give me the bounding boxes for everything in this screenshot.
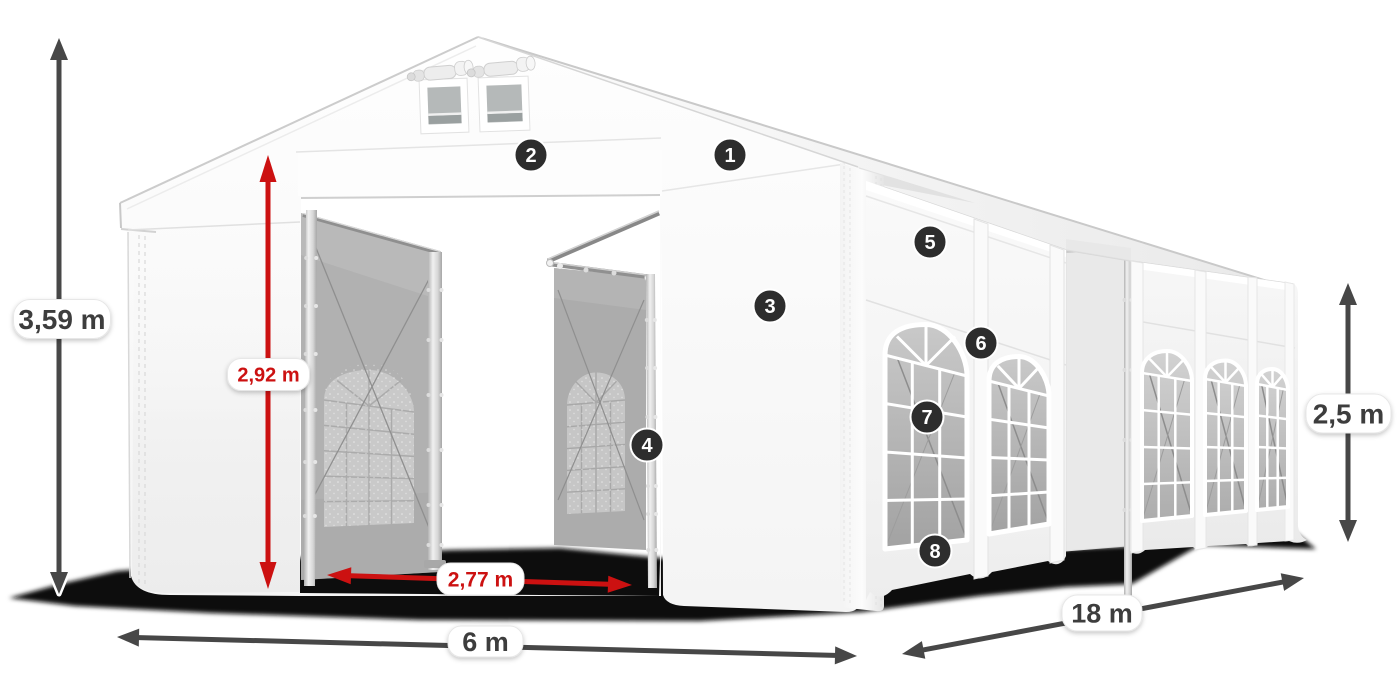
svg-text:18 m: 18 m: [1071, 599, 1133, 629]
svg-text:4: 4: [641, 435, 653, 457]
svg-text:7: 7: [921, 407, 932, 429]
svg-text:3,59 m: 3,59 m: [18, 304, 105, 335]
svg-text:2,77 m: 2,77 m: [448, 569, 513, 592]
svg-text:5: 5: [924, 232, 935, 254]
svg-text:2: 2: [525, 145, 536, 167]
svg-text:1: 1: [724, 145, 735, 167]
svg-text:6 m: 6 m: [462, 627, 509, 657]
svg-text:6: 6: [975, 333, 986, 355]
svg-text:2,92 m: 2,92 m: [237, 365, 299, 387]
svg-text:3: 3: [764, 296, 775, 318]
svg-text:8: 8: [929, 541, 940, 563]
svg-text:2,5 m: 2,5 m: [1313, 398, 1385, 429]
